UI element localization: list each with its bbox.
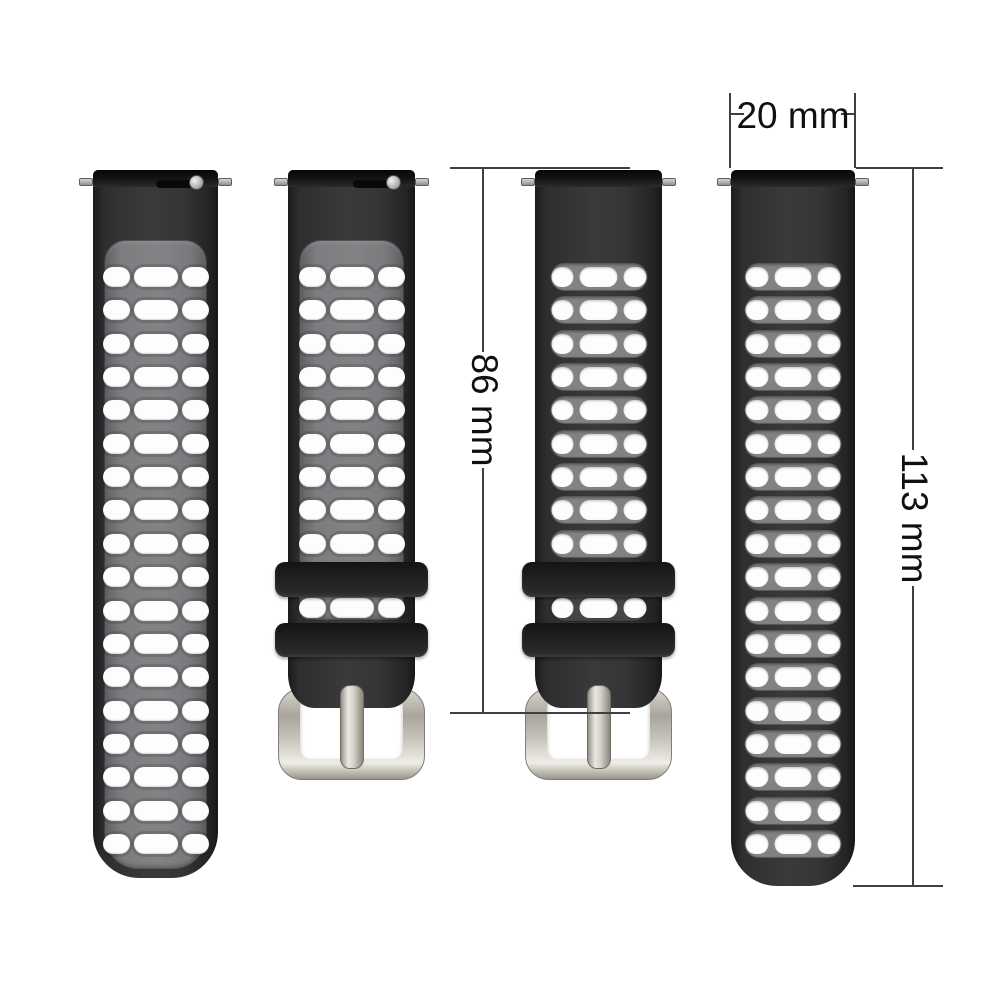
vent-hole: [378, 400, 405, 420]
vent-hole: [103, 601, 130, 621]
vent-hole: [746, 400, 769, 420]
vent-hole: [182, 400, 209, 420]
vent-hole: [103, 400, 130, 420]
dimension-extension-line: [450, 167, 630, 169]
vent-hole: [580, 598, 617, 618]
vent-hole: [103, 734, 130, 754]
vent-hole-row: [745, 496, 842, 524]
vent-hole: [818, 667, 841, 687]
vent-hole: [103, 767, 130, 787]
vent-hole: [103, 267, 130, 287]
vent-hole: [818, 367, 841, 387]
vent-hole-row: [103, 296, 209, 324]
vent-hole: [551, 500, 574, 520]
vent-hole: [580, 500, 617, 520]
vent-hole-row: [103, 363, 209, 391]
vent-hole: [299, 334, 326, 354]
vent-hole: [551, 434, 574, 454]
vent-hole: [746, 434, 769, 454]
vent-hole-row: [103, 663, 209, 691]
vent-hole: [774, 367, 811, 387]
vent-hole: [182, 534, 209, 554]
vent-hole-row: [745, 563, 842, 591]
spring-bar-pin: [855, 178, 869, 186]
vent-hole: [774, 434, 811, 454]
vent-hole: [774, 667, 811, 687]
vent-hole: [330, 434, 374, 454]
buckle-strap-two-tone: [288, 170, 415, 780]
quick-release: [156, 174, 206, 192]
vent-hole: [551, 534, 574, 554]
vent-hole: [746, 467, 769, 487]
vent-hole: [330, 534, 374, 554]
vent-hole: [299, 598, 326, 618]
dimension-extension-line: [856, 167, 943, 169]
lug-bar: [731, 170, 855, 187]
keeper-loop: [522, 562, 675, 597]
vent-hole: [134, 434, 178, 454]
vent-hole: [103, 534, 130, 554]
vent-hole: [746, 267, 769, 287]
vent-hole-row: [745, 396, 842, 424]
vent-hole: [580, 267, 617, 287]
vent-hole-row: [103, 530, 209, 558]
quick-release-knob: [386, 175, 401, 190]
vent-hole-row: [103, 430, 209, 458]
vent-hole-row: [103, 463, 209, 491]
vent-hole: [551, 467, 574, 487]
vent-hole-row: [745, 363, 842, 391]
vent-hole: [746, 634, 769, 654]
vent-hole: [378, 334, 405, 354]
vent-hole: [182, 500, 209, 520]
vent-hole: [134, 634, 178, 654]
vent-hole: [134, 400, 178, 420]
vent-hole: [580, 434, 617, 454]
vent-hole: [774, 267, 811, 287]
vent-hole: [746, 834, 769, 854]
vent-hole-row: [550, 530, 647, 558]
vent-hole: [182, 267, 209, 287]
vent-hole: [134, 601, 178, 621]
vent-hole-row: [745, 463, 842, 491]
vent-hole: [746, 300, 769, 320]
vent-hole-row: [103, 797, 209, 825]
vent-hole-row: [550, 296, 647, 324]
vent-hole: [818, 434, 841, 454]
vent-hole-row: [745, 630, 842, 658]
vent-hole: [134, 500, 178, 520]
vent-hole: [103, 701, 130, 721]
vent-hole: [818, 334, 841, 354]
vent-hole: [746, 334, 769, 354]
vent-hole: [623, 400, 646, 420]
vent-hole-row: [103, 396, 209, 424]
vent-hole: [551, 334, 574, 354]
vent-hole: [623, 334, 646, 354]
vent-hole: [134, 300, 178, 320]
watch-strap-dimension-diagram: 20 mm 86 mm 113 mm: [0, 0, 1000, 1000]
vent-hole: [103, 334, 130, 354]
vent-hole: [134, 267, 178, 287]
vent-hole: [134, 834, 178, 854]
vent-hole-row: [745, 763, 842, 791]
vent-hole: [580, 467, 617, 487]
vent-hole: [623, 300, 646, 320]
vent-hole-row: [745, 730, 842, 758]
vent-hole-row: [550, 363, 647, 391]
vent-hole: [134, 667, 178, 687]
vent-hole: [182, 701, 209, 721]
vent-hole: [182, 734, 209, 754]
vent-hole: [378, 500, 405, 520]
vent-hole: [623, 598, 646, 618]
vent-hole: [623, 267, 646, 287]
vent-hole: [182, 300, 209, 320]
vent-hole: [330, 300, 374, 320]
dimension-line: [482, 168, 484, 352]
vent-hole: [774, 567, 811, 587]
vent-hole: [299, 367, 326, 387]
vent-hole: [623, 500, 646, 520]
vent-hole-row: [745, 697, 842, 725]
vent-hole: [378, 598, 405, 618]
vent-hole: [182, 467, 209, 487]
vent-hole: [134, 734, 178, 754]
vent-hole: [378, 434, 405, 454]
vent-hole-row: [550, 463, 647, 491]
vent-hole: [134, 701, 178, 721]
quick-release: [353, 174, 403, 192]
vent-hole: [746, 801, 769, 821]
vent-hole: [299, 300, 326, 320]
vent-hole: [746, 500, 769, 520]
vent-hole: [330, 267, 374, 287]
vent-hole: [103, 801, 130, 821]
long-strap-black: [731, 170, 855, 886]
vent-hole: [299, 434, 326, 454]
dimension-extension-line: [450, 712, 630, 714]
vent-hole: [134, 801, 178, 821]
strap-width-label: 20 mm: [731, 95, 855, 137]
vent-hole-row: [299, 430, 405, 458]
lug-bar: [535, 170, 662, 187]
vent-hole: [134, 334, 178, 354]
vent-hole-row: [103, 763, 209, 791]
vent-hole: [134, 367, 178, 387]
vent-hole: [623, 434, 646, 454]
vent-hole: [818, 767, 841, 787]
buckle-strap-length-label: 86 mm: [463, 353, 505, 466]
vent-hole-row: [299, 363, 405, 391]
vent-hole: [818, 467, 841, 487]
vent-hole: [182, 434, 209, 454]
vent-hole: [182, 567, 209, 587]
vent-hole: [330, 334, 374, 354]
vent-hole: [818, 701, 841, 721]
buckle-strap-black: [535, 170, 662, 780]
vent-hole: [818, 567, 841, 587]
vent-hole: [551, 400, 574, 420]
dimension-line: [912, 586, 914, 886]
vent-hole-row: [103, 730, 209, 758]
vent-hole: [378, 300, 405, 320]
spring-bar-pin: [218, 178, 232, 186]
vent-hole: [134, 767, 178, 787]
vent-hole: [103, 434, 130, 454]
vent-hole: [746, 534, 769, 554]
vent-hole-row: [299, 330, 405, 358]
vent-hole: [818, 801, 841, 821]
vent-hole: [623, 367, 646, 387]
vent-hole: [299, 467, 326, 487]
vent-hole-row: [745, 830, 842, 858]
vent-hole: [774, 467, 811, 487]
vent-hole-row: [550, 496, 647, 524]
vent-hole: [330, 467, 374, 487]
vent-hole: [746, 701, 769, 721]
vent-hole: [818, 834, 841, 854]
vent-hole: [182, 834, 209, 854]
buckle-tang: [340, 685, 364, 769]
vent-hole: [580, 534, 617, 554]
vent-hole: [818, 534, 841, 554]
vent-hole: [182, 367, 209, 387]
vent-hole: [623, 467, 646, 487]
strap-body: [731, 170, 855, 886]
vent-hole: [551, 267, 574, 287]
spring-bar-pin: [717, 178, 731, 186]
vent-hole: [580, 367, 617, 387]
vent-hole: [134, 467, 178, 487]
vent-hole: [818, 601, 841, 621]
vent-hole: [103, 567, 130, 587]
vent-hole-row: [103, 597, 209, 625]
vent-hole-row: [103, 830, 209, 858]
vent-hole: [580, 334, 617, 354]
vent-hole: [299, 534, 326, 554]
vent-hole: [580, 400, 617, 420]
vent-hole: [299, 267, 326, 287]
vent-hole: [299, 500, 326, 520]
vent-hole: [551, 367, 574, 387]
vent-hole: [774, 300, 811, 320]
spring-bar-pin: [662, 178, 676, 186]
vent-hole-row: [550, 430, 647, 458]
vent-hole: [774, 801, 811, 821]
vent-hole: [774, 734, 811, 754]
vent-hole-row: [299, 530, 405, 558]
vent-hole: [182, 801, 209, 821]
vent-hole: [623, 534, 646, 554]
vent-hole-row: [550, 330, 647, 358]
vent-hole-row: [745, 797, 842, 825]
vent-hole: [774, 400, 811, 420]
vent-hole-row: [745, 530, 842, 558]
vent-hole: [182, 634, 209, 654]
vent-hole-row: [745, 296, 842, 324]
vent-hole-row: [103, 563, 209, 591]
dimension-extension-line: [853, 885, 943, 887]
vent-hole-row: [103, 263, 209, 291]
vent-hole: [378, 367, 405, 387]
vent-hole: [746, 567, 769, 587]
buckle-tang: [587, 685, 611, 769]
vent-hole: [774, 834, 811, 854]
vent-hole: [774, 701, 811, 721]
long-strap-length-label: 113 mm: [893, 453, 935, 584]
dimension-line: [482, 468, 484, 713]
vent-hole: [330, 598, 374, 618]
vent-hole-row: [299, 463, 405, 491]
vent-hole: [746, 667, 769, 687]
vent-hole: [551, 300, 574, 320]
vent-hole: [818, 400, 841, 420]
strap-body: [93, 170, 218, 878]
vent-hole-row: [103, 697, 209, 725]
vent-hole-row: [550, 396, 647, 424]
vent-hole-row: [103, 496, 209, 524]
vent-hole: [774, 500, 811, 520]
keeper-loop: [275, 562, 428, 597]
vent-hole-row: [745, 430, 842, 458]
vent-hole-row: [550, 263, 647, 291]
vent-hole-row: [745, 263, 842, 291]
vent-hole: [551, 598, 574, 618]
quick-release-knob: [189, 175, 204, 190]
vent-hole-row: [745, 663, 842, 691]
vent-hole: [774, 767, 811, 787]
vent-hole: [818, 734, 841, 754]
vent-hole-row: [550, 594, 647, 622]
vent-hole: [746, 367, 769, 387]
long-strap-two-tone: [93, 170, 218, 878]
vent-hole-row: [103, 630, 209, 658]
vent-hole: [103, 300, 130, 320]
vent-hole-row: [745, 597, 842, 625]
vent-hole: [103, 634, 130, 654]
vent-hole: [774, 334, 811, 354]
vent-hole: [134, 567, 178, 587]
vent-hole: [818, 634, 841, 654]
vent-hole: [330, 500, 374, 520]
vent-hole: [103, 834, 130, 854]
vent-hole-row: [299, 396, 405, 424]
vent-hole: [774, 601, 811, 621]
vent-hole: [746, 767, 769, 787]
vent-hole-row: [299, 594, 405, 622]
dimension-line: [912, 168, 914, 450]
spring-bar-pin: [79, 178, 93, 186]
vent-hole: [818, 300, 841, 320]
vent-hole: [182, 334, 209, 354]
vent-hole: [330, 367, 374, 387]
vent-hole: [818, 267, 841, 287]
vent-hole: [103, 367, 130, 387]
vent-hole: [580, 300, 617, 320]
vent-hole: [103, 500, 130, 520]
vent-hole: [818, 500, 841, 520]
vent-hole-row: [745, 330, 842, 358]
vent-hole: [330, 400, 374, 420]
vent-hole: [103, 467, 130, 487]
vent-hole: [378, 534, 405, 554]
keeper-loop: [275, 623, 428, 657]
vent-hole: [774, 634, 811, 654]
vent-hole: [774, 534, 811, 554]
vent-hole: [378, 267, 405, 287]
vent-hole-row: [299, 263, 405, 291]
vent-hole: [378, 467, 405, 487]
vent-hole: [299, 400, 326, 420]
vent-hole-row: [299, 496, 405, 524]
vent-hole: [746, 601, 769, 621]
vent-hole: [182, 667, 209, 687]
vent-hole: [182, 601, 209, 621]
spring-bar-pin: [415, 178, 429, 186]
keeper-loop: [522, 623, 675, 657]
vent-hole: [134, 534, 178, 554]
vent-hole-row: [299, 296, 405, 324]
vent-hole: [182, 767, 209, 787]
spring-bar-pin: [274, 178, 288, 186]
spring-bar-pin: [521, 178, 535, 186]
vent-hole: [103, 667, 130, 687]
vent-hole: [746, 734, 769, 754]
vent-hole-row: [103, 330, 209, 358]
